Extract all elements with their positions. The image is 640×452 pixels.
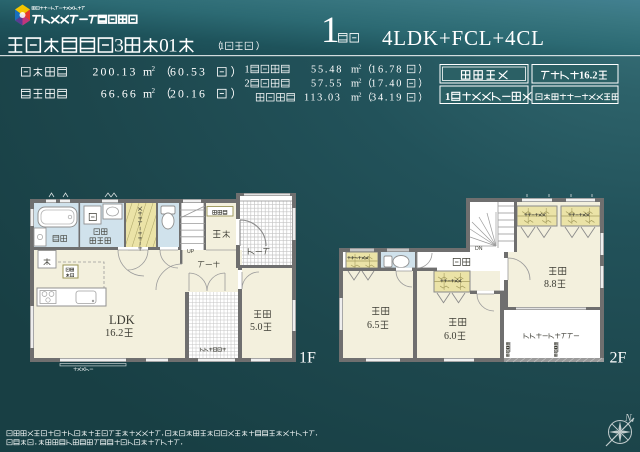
svg-text:57.55: 57.55 (311, 79, 343, 90)
svg-text:UP: UP (187, 249, 195, 255)
svg-text:60.53: 60.53 (170, 65, 207, 79)
svg-text:16.2: 16.2 (579, 71, 598, 82)
svg-text:55.48: 55.48 (311, 64, 343, 75)
svg-text:66.66: 66.66 (101, 86, 138, 100)
svg-text:01: 01 (159, 36, 177, 57)
svg-text:17.40: 17.40 (371, 79, 403, 90)
svg-text:4LDK+FCL+4CL: 4LDK+FCL+4CL (382, 26, 545, 50)
svg-text:2: 2 (245, 79, 250, 90)
svg-text:1: 1 (219, 41, 224, 52)
svg-text:1: 1 (445, 91, 450, 103)
svg-text:6.0: 6.0 (444, 331, 457, 342)
svg-text:34.19: 34.19 (371, 93, 403, 104)
svg-text:1F: 1F (299, 350, 316, 367)
svg-text:113.03: 113.03 (304, 93, 342, 104)
svg-text:2: 2 (358, 63, 361, 70)
svg-text:16.2: 16.2 (105, 328, 123, 339)
svg-text:200.13: 200.13 (93, 65, 138, 79)
svg-text:2: 2 (152, 65, 156, 73)
svg-text:5.0: 5.0 (250, 322, 263, 333)
svg-text:DN: DN (475, 246, 483, 252)
svg-text:20.16: 20.16 (170, 86, 207, 100)
svg-text:N: N (624, 413, 633, 424)
svg-text:LDK: LDK (109, 313, 135, 327)
svg-text:1: 1 (245, 64, 250, 75)
svg-text:2: 2 (358, 78, 361, 85)
svg-text:1: 1 (321, 10, 340, 51)
svg-text:2: 2 (358, 92, 361, 99)
svg-text:2F: 2F (610, 350, 627, 367)
svg-text:16.78: 16.78 (371, 64, 403, 75)
svg-text:3: 3 (114, 36, 123, 57)
svg-text:6.5: 6.5 (367, 320, 380, 331)
svg-text:2: 2 (152, 87, 156, 95)
svg-text:8.8: 8.8 (544, 279, 557, 290)
